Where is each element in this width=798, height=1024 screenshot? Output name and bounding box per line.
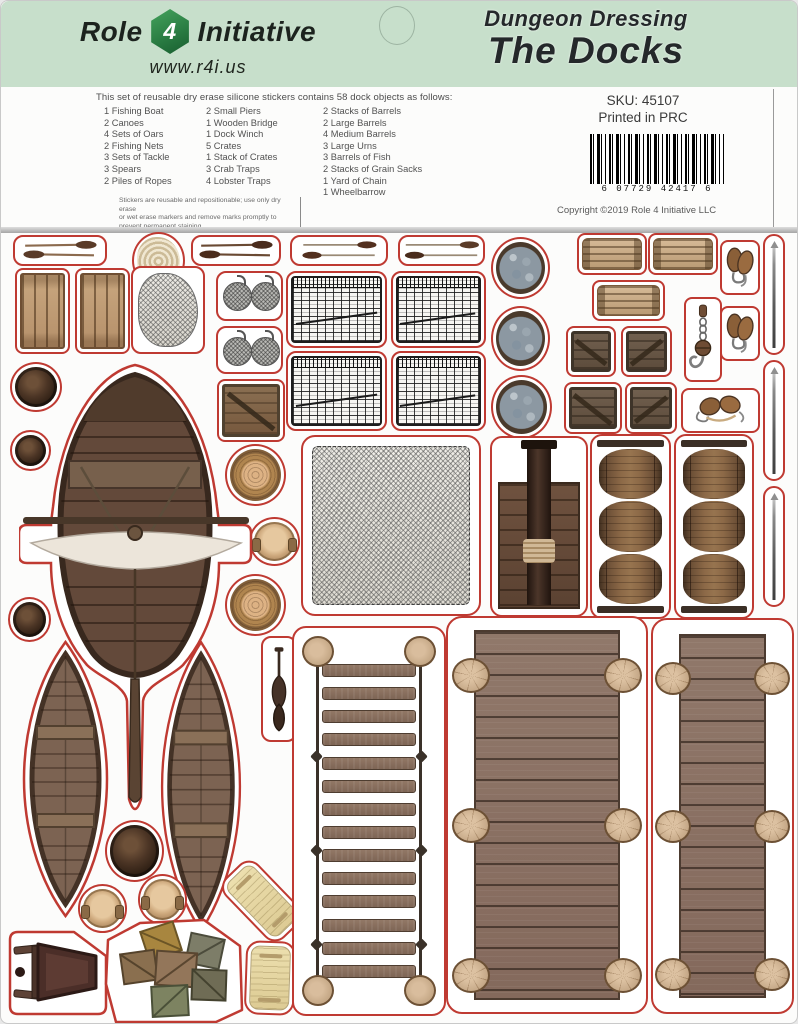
- sku-block: SKU: 45107 Printed in PRC: [559, 92, 727, 126]
- sticker-small-pier-1: [15, 268, 70, 354]
- sticker-crate-3: [564, 382, 622, 434]
- sticker-small-pier-2: [75, 268, 130, 354]
- urn-top: [254, 522, 295, 561]
- sticker-crate-4: [625, 382, 677, 434]
- bridge-post: [302, 636, 334, 667]
- contents-item: 1 Wooden Bridge: [206, 118, 323, 130]
- sticker-barrel-of-fish-3: [491, 375, 552, 439]
- spear: [773, 244, 776, 348]
- sticker-fishing-net-square: [301, 435, 481, 616]
- sticker-wheelbarrow: [6, 928, 110, 1018]
- pier-deck: [679, 634, 766, 998]
- sticker-crate-pile: [104, 918, 244, 1024]
- copyright-line: Copyright ©2019 Role 4 Initiative LLC: [557, 205, 716, 216]
- hang-hole: [379, 6, 415, 45]
- pier-post: [452, 658, 490, 693]
- contents-item: 5 Crates: [206, 141, 323, 153]
- spear: [773, 496, 776, 600]
- product-name: The Docks: [421, 30, 751, 72]
- sticker-spear-1: [763, 234, 785, 355]
- sticker-lobster-trap-1: [577, 233, 647, 275]
- contents-item: 2 Fishing Nets: [104, 141, 206, 153]
- contents-item: 3 Spears: [104, 164, 206, 176]
- divider-line: [773, 89, 774, 229]
- brand-word-initiative: Initiative: [198, 16, 317, 48]
- pier-post: [754, 810, 790, 843]
- sticker-oar-pair-4: [398, 235, 485, 266]
- sticker-tackle-pulley-2: [720, 306, 760, 361]
- contents-list: 1 Fishing Boat 2 Canoes 4 Sets of Oars 2…: [104, 106, 473, 199]
- fish-barrel-top: [496, 311, 545, 366]
- wood-slat-trap: [582, 238, 642, 270]
- pier-post: [604, 658, 642, 693]
- crab-trap: [251, 337, 280, 366]
- contents-item: 1 Fishing Boat: [104, 106, 206, 118]
- grain-sack: [249, 945, 291, 1010]
- crate: [571, 331, 611, 372]
- contents-item: 3 Sets of Tackle: [104, 152, 206, 164]
- winch-post: [527, 443, 551, 605]
- pier-post: [754, 958, 790, 991]
- sticker-tackle-pulley-pair: [681, 388, 760, 433]
- crate: [626, 331, 667, 372]
- contents-item: 1 Yard of Chain: [323, 176, 473, 188]
- pier-deck: [474, 630, 620, 1000]
- pier-post: [655, 662, 691, 695]
- barrel-top: [110, 825, 159, 877]
- contents-item: 4 Medium Barrels: [323, 129, 473, 141]
- product-series: Dungeon Dressing: [421, 6, 751, 32]
- sticker-chain-hook: [684, 297, 722, 382]
- contents-item: 2 Canoes: [104, 118, 206, 130]
- contents-item: 2 Piles of Ropes: [104, 176, 206, 188]
- sku-number: SKU: 45107: [559, 92, 727, 109]
- barcode: [590, 134, 724, 184]
- brand-website: www.r4i.us: [73, 57, 323, 78]
- sticker-crate-1: [566, 326, 616, 377]
- printed-in: Printed in PRC: [559, 109, 727, 126]
- contents-item: 3 Large Urns: [323, 141, 473, 153]
- contents-item: 3 Barrels of Fish: [323, 152, 473, 164]
- stacked-barrels: [680, 440, 748, 613]
- sticker-dock-winch: [490, 436, 588, 617]
- contents-item: 2 Stacks of Grain Sacks: [323, 164, 473, 176]
- stacked-barrels: [596, 440, 665, 613]
- sticker-wire-trap-2: [391, 271, 486, 348]
- sticker-crate-2: [621, 326, 672, 377]
- sticker-tackle-pulley-1: [720, 240, 760, 295]
- contents-item: 1 Stack of Crates: [206, 152, 323, 164]
- bridge-post: [302, 975, 334, 1006]
- pier-post: [452, 958, 490, 993]
- net: [312, 446, 470, 605]
- d20-dice-icon: 4: [150, 9, 191, 54]
- sticker-oar-pair-3: [290, 235, 388, 266]
- wire-cage: [396, 356, 481, 426]
- product-title: Dungeon Dressing The Docks: [421, 6, 751, 72]
- sticker-lobster-trap-2: [648, 233, 718, 275]
- sticker-fishing-net-draped: [131, 266, 205, 354]
- pier-post: [452, 808, 490, 843]
- wire-cage: [291, 276, 382, 343]
- wood-plank-panel: [20, 273, 65, 349]
- sticker-oar-pair-2: [191, 235, 281, 266]
- sticker-spear-3: [763, 486, 785, 607]
- winch-rope: [523, 539, 555, 563]
- bridge-post: [404, 975, 436, 1006]
- contents-item: 3 Crab Traps: [206, 164, 323, 176]
- sticker-grain-sack-2: [244, 940, 297, 1016]
- sticker-barrel-of-fish-1: [491, 237, 550, 299]
- contents-column-3: 2 Stacks of Barrels 2 Large Barrels 4 Me…: [323, 106, 473, 199]
- wood-slat-trap: [597, 285, 660, 316]
- contents-item: 4 Sets of Oars: [104, 129, 206, 141]
- brand-logo: Role 4 Initiative www.r4i.us: [73, 9, 323, 78]
- sticker-sheet-page: Role 4 Initiative www.r4i.us Dungeon Dre…: [0, 0, 798, 1024]
- sticker-pier-small: [651, 618, 794, 1014]
- header-band: Role 4 Initiative www.r4i.us Dungeon Dre…: [1, 1, 798, 87]
- contents-item: 2 Small Piers: [206, 106, 323, 118]
- fish-barrel-top: [496, 242, 545, 294]
- contents-item: 2 Stacks of Barrels: [323, 106, 473, 118]
- spear: [773, 370, 776, 474]
- crate: [630, 387, 672, 429]
- pier-post: [604, 808, 642, 843]
- contents-item: 1 Wheelbarrow: [323, 187, 473, 199]
- pier-post: [604, 958, 642, 993]
- net: [138, 273, 198, 347]
- urn-top: [143, 879, 182, 920]
- sticker-pier-large: [446, 616, 648, 1014]
- crate: [569, 387, 617, 429]
- contents-intro: This set of reusable dry erase silicone …: [96, 92, 452, 103]
- bridge-slats: [322, 664, 416, 978]
- sticker-barrel-stack-2: [674, 434, 754, 619]
- wood-slat-trap: [653, 238, 713, 270]
- contents-item: 4 Lobster Traps: [206, 176, 323, 188]
- contents-column-2: 2 Small Piers 1 Wooden Bridge 1 Dock Win…: [206, 106, 323, 199]
- contents-item: 1 Dock Winch: [206, 129, 323, 141]
- sticker-large-barrel-2: [105, 820, 164, 882]
- sticker-wire-trap-1: [286, 271, 387, 348]
- sticker-oar-pair-1: [13, 235, 107, 266]
- sticker-barrel-of-fish-2: [491, 306, 550, 371]
- pier-post: [754, 662, 790, 695]
- brand-word-role: Role: [80, 16, 143, 48]
- sticker-crab-traps-1: [216, 271, 283, 321]
- sticker-barrel-stack-1: [590, 434, 671, 619]
- sticker-canoe-1: [9, 638, 122, 920]
- contents-column-1: 1 Fishing Boat 2 Canoes 4 Sets of Oars 2…: [104, 106, 206, 199]
- sticker-rope-bridge: [292, 626, 446, 1016]
- barcode-digits: 6 07729 42417 6: [581, 184, 733, 194]
- sticker-urn-1: [249, 517, 300, 566]
- wood-plank-panel: [80, 273, 125, 349]
- crab-trap: [251, 282, 280, 311]
- sticker-wire-trap-3: [286, 351, 387, 431]
- sticker-spear-2: [763, 360, 785, 481]
- contents-item: 2 Large Barrels: [323, 118, 473, 130]
- pier-post: [655, 810, 691, 843]
- pier-post: [655, 958, 691, 991]
- fish-barrel-top: [496, 380, 547, 434]
- bridge-post: [404, 636, 436, 667]
- crab-trap: [223, 282, 252, 311]
- wire-cage: [396, 276, 481, 343]
- sticker-lobster-trap-3: [592, 280, 665, 321]
- wire-cage: [291, 356, 382, 426]
- sticker-wire-trap-4: [391, 351, 486, 431]
